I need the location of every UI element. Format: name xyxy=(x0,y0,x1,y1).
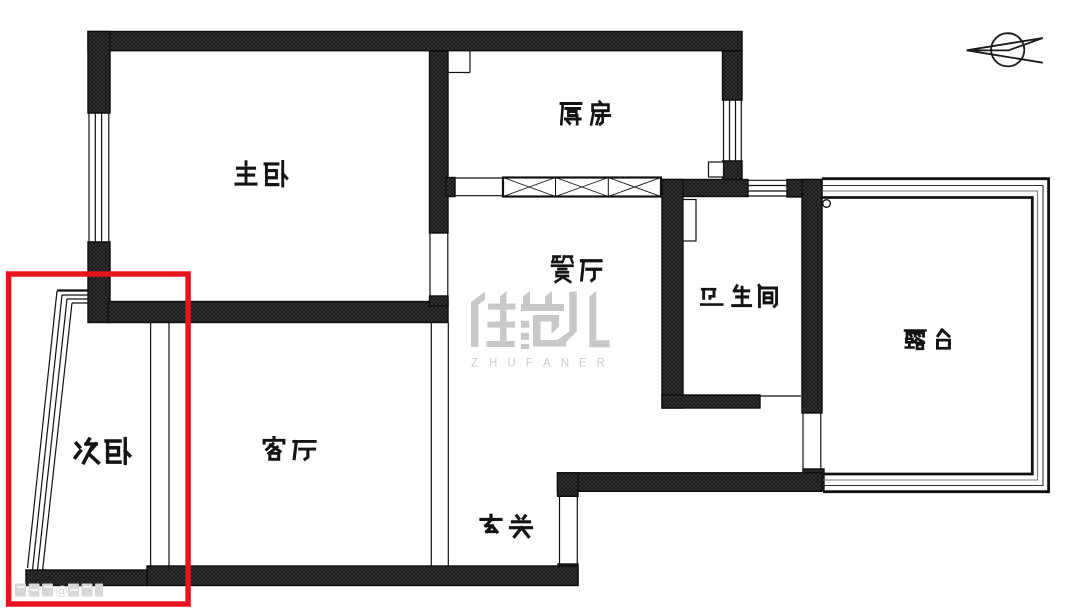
svg-text:A: A xyxy=(543,358,551,370)
svg-text:E: E xyxy=(579,358,587,370)
svg-text:R: R xyxy=(597,358,605,370)
svg-text:Z: Z xyxy=(471,358,478,370)
svg-text:@: @ xyxy=(55,583,68,598)
svg-text:H: H xyxy=(489,358,497,370)
svg-text:N: N xyxy=(561,358,569,370)
svg-text:U: U xyxy=(508,358,516,370)
svg-text:F: F xyxy=(526,358,533,370)
